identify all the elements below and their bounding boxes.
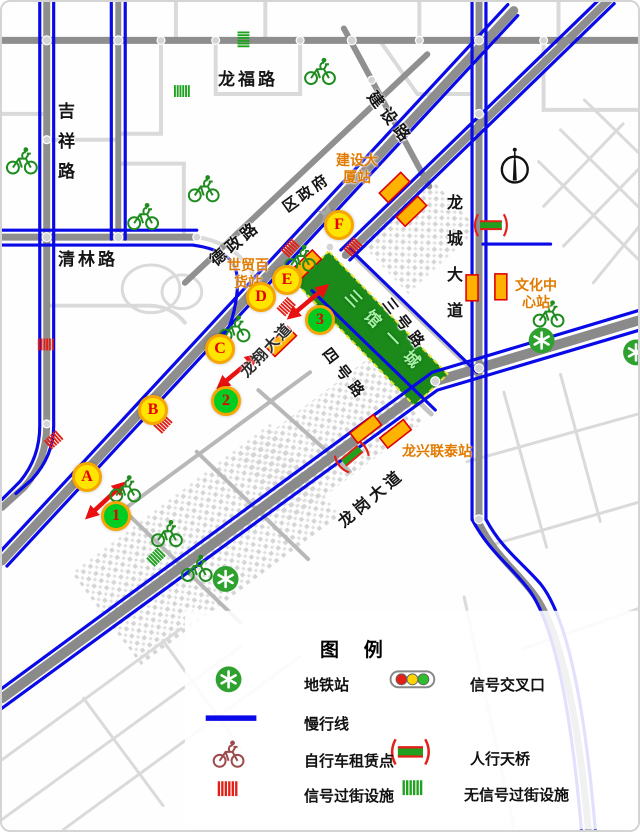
marker-A[interactable]: A — [72, 462, 102, 492]
metro-station-icon — [623, 339, 638, 365]
legend-label-metro: 地铁站 — [304, 674, 349, 695]
road-label-longcheng: 龙城大道 — [440, 194, 464, 338]
station-label-wenhuazhongxin[interactable]: 文化中 心站 — [515, 279, 557, 312]
marker-B[interactable]: B — [138, 395, 168, 425]
bike-rental-icon — [305, 58, 335, 84]
station-label-longxinglentai[interactable]: 龙兴联泰站 — [402, 445, 472, 462]
city-slow-traffic-map: 吉祥路 龙福路 清林路 建设路 德政路 区政府 龙城大道 三号路 四号路 龙翔大… — [0, 0, 640, 832]
marker-C[interactable]: C — [205, 334, 235, 364]
legend-label-pedestrian-bridge: 人行天桥 — [470, 748, 530, 769]
metro-station-icon — [213, 566, 239, 592]
bike-rental-icon — [189, 175, 219, 201]
marker-D[interactable]: D — [246, 282, 276, 312]
monument-icon — [502, 148, 528, 183]
marker-3[interactable]: 3 — [305, 305, 335, 335]
legend-label-slow-line: 慢行线 — [304, 713, 349, 734]
metro-station-icon — [529, 328, 555, 354]
no-signal-crossing-icon — [175, 85, 189, 97]
legend-label-signal-crossing: 信号过街设施 — [304, 785, 394, 806]
marker-1[interactable]: 1 — [101, 501, 131, 531]
bike-rental-icon — [7, 147, 37, 173]
road-label-longfu: 龙福路 — [218, 65, 278, 90]
legend-title: 图 例 — [320, 635, 393, 662]
station-label-jianshedasha[interactable]: 建设大 厦站 — [336, 154, 378, 187]
bike-rental-icon — [128, 203, 158, 229]
metro-station-icon — [216, 666, 242, 692]
legend-label-signal-intersection: 信号交叉口 — [470, 674, 545, 695]
legend-label-no-signal-crossing: 无信号过街设施 — [464, 784, 569, 805]
road-label-jixiang: 吉祥路 — [52, 102, 77, 192]
marker-E[interactable]: E — [272, 265, 302, 295]
map-canvas — [2, 2, 638, 830]
marker-2[interactable]: 2 — [211, 386, 241, 416]
legend-label-bike-rental: 自行车租赁点 — [304, 750, 394, 771]
marker-F[interactable]: F — [324, 210, 354, 240]
road-label-qinglin: 清林路 — [58, 245, 118, 270]
traffic-light-icon — [391, 671, 435, 687]
